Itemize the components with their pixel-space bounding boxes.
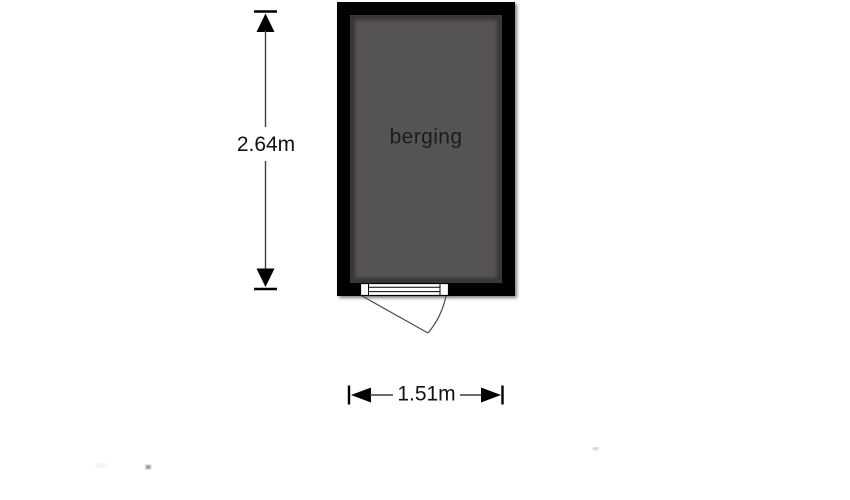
dimension-arrow-left-icon xyxy=(351,388,371,403)
room: berging xyxy=(337,2,515,296)
room-floor xyxy=(350,15,502,283)
height-dimension: 2.64m xyxy=(237,12,295,290)
door-leaf-line xyxy=(362,296,428,333)
dimension-arrow-up-icon xyxy=(257,14,275,33)
scan-artifacts xyxy=(96,448,598,469)
height-dim-label: 2.64m xyxy=(237,133,295,156)
door-swing-arc xyxy=(428,296,446,333)
door xyxy=(361,284,449,334)
floorplan-drawing: berging 2.64m 1.51m xyxy=(0,0,850,500)
room-label: berging xyxy=(390,126,463,149)
dimension-arrow-right-icon xyxy=(481,388,501,403)
width-dimension: 1.51m xyxy=(349,383,503,406)
width-dim-label: 1.51m xyxy=(397,383,455,406)
dimension-arrow-down-icon xyxy=(257,269,275,288)
speck-gray-right xyxy=(593,448,598,451)
floorplan-canvas: berging 2.64m 1.51m xyxy=(0,0,850,500)
speck-faint-left xyxy=(96,464,106,467)
door-panel xyxy=(361,284,449,296)
speck-dark xyxy=(146,466,151,469)
